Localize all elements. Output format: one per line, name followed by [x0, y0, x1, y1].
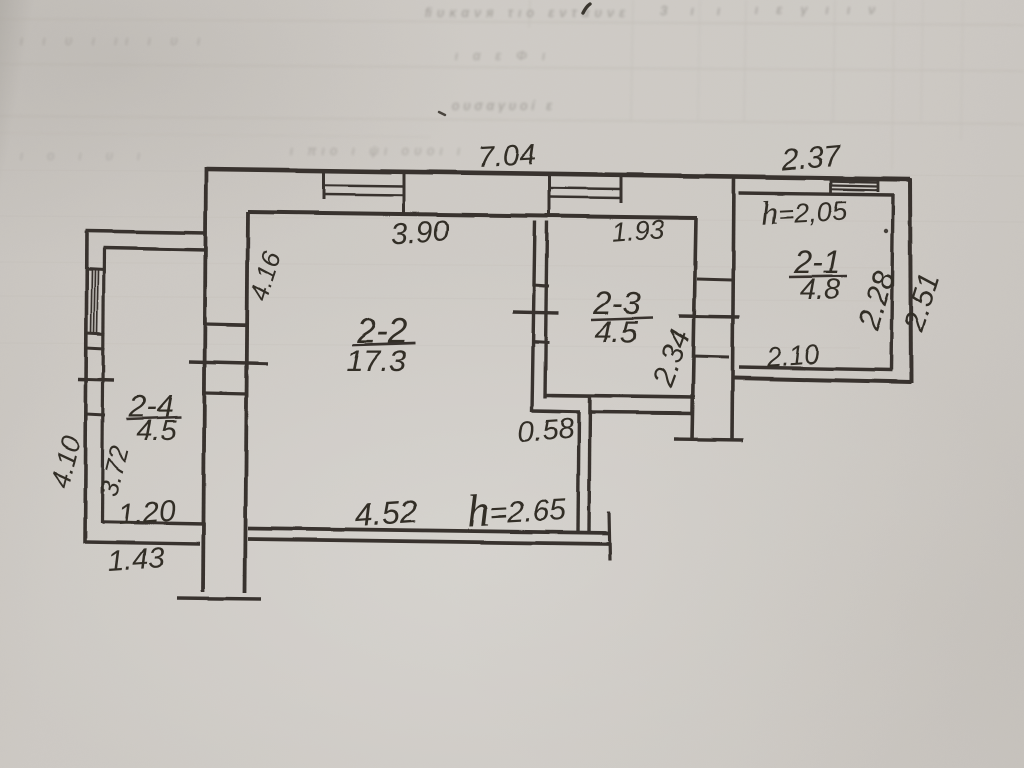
svg-text:7.04: 7.04: [477, 138, 537, 174]
svg-text:4.52: 4.52: [354, 493, 419, 533]
svg-text:0.58: 0.58: [517, 413, 576, 449]
svg-text:4.5: 4.5: [136, 415, 177, 447]
svg-text:17.3: 17.3: [346, 344, 406, 379]
svg-text:4.8: 4.8: [800, 274, 840, 306]
svg-text:1.93: 1.93: [611, 214, 666, 248]
svg-text:3.90: 3.90: [390, 214, 451, 251]
svg-text:4.5: 4.5: [594, 315, 638, 350]
svg-text:1.43: 1.43: [107, 542, 166, 578]
svg-text:1.20: 1.20: [117, 494, 178, 531]
svg-text:2.37: 2.37: [779, 139, 842, 177]
svg-text:2.10: 2.10: [765, 339, 821, 373]
